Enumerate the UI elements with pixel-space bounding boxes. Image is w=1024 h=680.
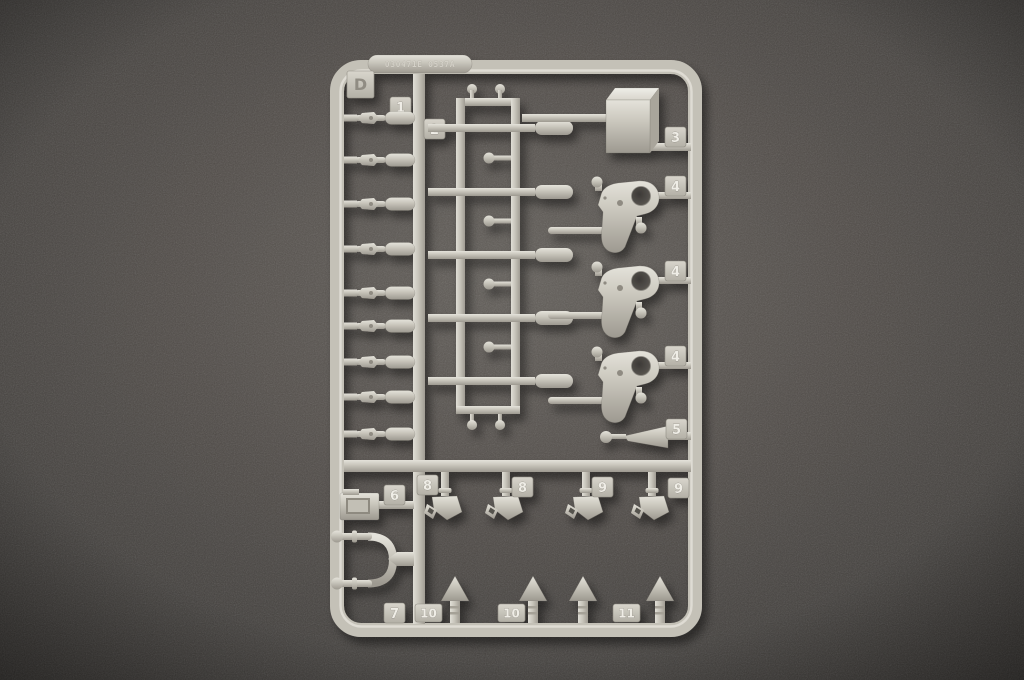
svg-text:11: 11: [618, 607, 635, 621]
svg-text:7: 7: [390, 607, 399, 622]
part-tag-5: 5: [666, 419, 687, 439]
part-tag-4b: 4: [665, 261, 686, 281]
sprue-letter-plaque: D: [347, 71, 374, 98]
svg-text:8: 8: [518, 481, 527, 496]
sprue-photo-svg: 030471E 0537A D 1 2: [0, 0, 1024, 680]
svg-text:6: 6: [390, 489, 399, 504]
part-tag-8a: 8: [417, 475, 438, 495]
svg-text:9: 9: [598, 481, 607, 496]
photo-of-model-sprue: 030471E 0537A D 1 2: [0, 0, 1024, 680]
svg-text:4: 4: [671, 180, 680, 195]
svg-text:4: 4: [671, 350, 680, 365]
part-tag-3: 3: [665, 127, 686, 147]
part-tag-9b: 9: [668, 478, 689, 498]
svg-text:8: 8: [423, 479, 432, 494]
part-tag-4c: 4: [665, 346, 686, 366]
part-tag-11: 11: [613, 604, 640, 622]
sprue-letter-text: D: [354, 75, 367, 94]
part-tag-9a: 9: [592, 477, 613, 497]
svg-text:4: 4: [671, 265, 680, 280]
part-tag-7: 7: [384, 603, 405, 623]
svg-text:5: 5: [672, 423, 681, 438]
part-tag-10a: 10: [415, 604, 442, 622]
part-tag-6: 6: [384, 485, 405, 505]
part-tag-8b: 8: [512, 477, 533, 497]
crossbar-runner: [344, 460, 691, 472]
svg-text:10: 10: [420, 607, 437, 621]
embossed-code-text: 030471E 0537A: [385, 60, 455, 69]
part-tag-4a: 4: [665, 176, 686, 196]
svg-text:3: 3: [671, 131, 680, 146]
vertical-runner: [413, 74, 425, 624]
svg-text:10: 10: [503, 607, 520, 621]
embossed-code-plaque: 030471E 0537A: [368, 55, 472, 73]
part-tag-10b: 10: [498, 604, 525, 622]
svg-text:9: 9: [674, 482, 683, 497]
